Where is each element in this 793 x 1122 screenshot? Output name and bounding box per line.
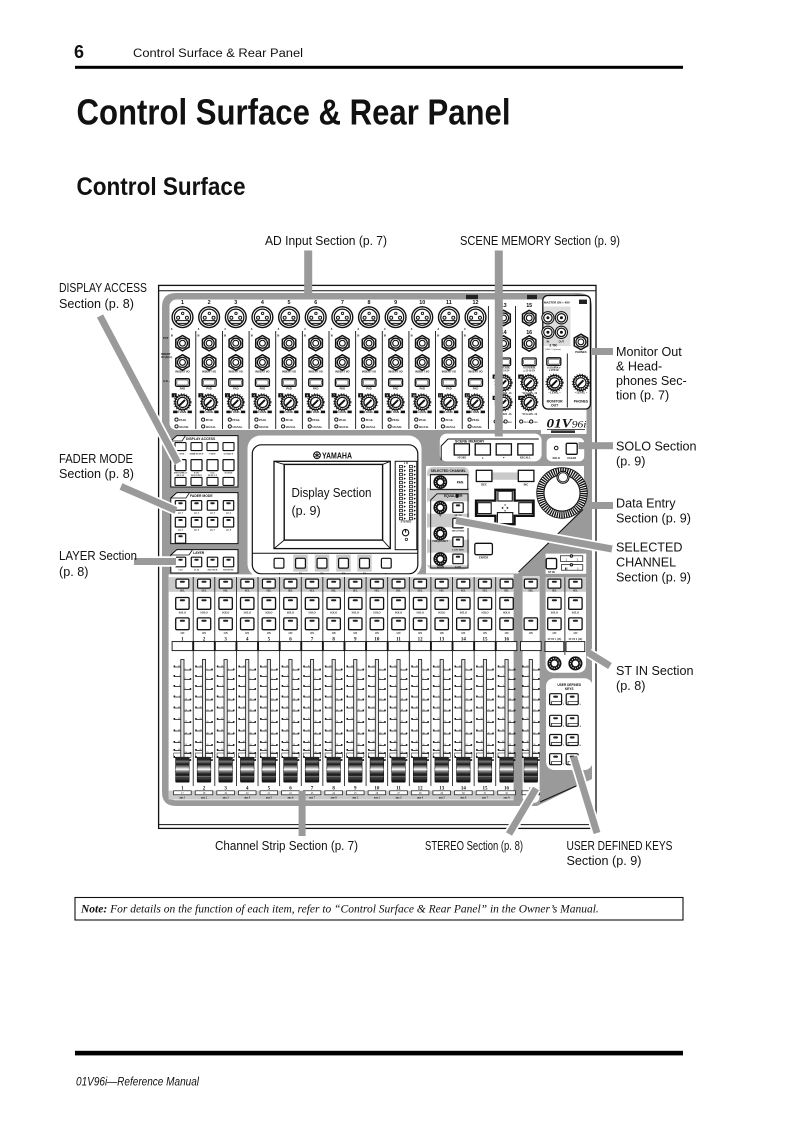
svg-text:SELECTED CHANNEL: SELECTED CHANNEL [431,469,467,473]
svg-text:ON: ON [202,632,206,635]
svg-text:CHANNEL: CHANNEL [616,556,676,570]
svg-text:SOLO: SOLO [503,611,510,614]
svg-text:Control Surface & Rear Panel: Control Surface & Rear Panel [133,48,303,60]
svg-text:+10 GAIN -16: +10 GAIN -16 [308,410,325,414]
svg-text:12: 12 [466,394,470,398]
svg-text:4: 4 [261,300,264,306]
svg-text:11: 11 [439,394,442,398]
svg-text:SOLO: SOLO [395,611,402,614]
svg-text:▲: ▲ [482,457,485,460]
svg-text:ON: ON [353,632,357,635]
svg-text:+10 GAIN -16: +10 GAIN -16 [441,410,458,414]
svg-text:SEL: SEL [202,589,207,592]
svg-text:UTILITY: UTILITY [224,454,234,456]
svg-text:(p. 8): (p. 8) [59,565,88,579]
svg-text:+10 GAIN -16: +10 GAIN -16 [174,410,191,414]
svg-text:+10 GAIN -16: +10 GAIN -16 [201,410,218,414]
svg-text:Section (p. 8): Section (p. 8) [59,467,134,481]
svg-text:PAD: PAD [420,387,426,391]
svg-text:LOW: LOW [455,566,462,569]
svg-text:aux 2: aux 2 [201,797,208,800]
svg-text:ST IN Section: ST IN Section [616,664,693,678]
svg-text:Channel Strip Section (p. 7): Channel Strip Section (p. 7) [215,839,358,853]
svg-text:FREQUENCY: FREQUENCY [432,540,448,543]
svg-text:SOLO: SOLO [438,611,445,614]
svg-text:MIDI/SETUP: MIDI/SETUP [190,454,204,456]
svg-text:+10 GAIN -16: +10 GAIN -16 [361,410,378,414]
svg-text:▲: ▲ [383,327,386,331]
svg-text:OUT: OUT [551,404,559,408]
svg-text:+10 GAIN -16: +10 GAIN -16 [281,410,298,414]
svg-text:PAN/: PAN/ [194,471,200,474]
svg-text:SEL: SEL [528,589,533,592]
svg-text:PEAK: PEAK [366,419,373,422]
svg-text:ON: ON [483,632,487,635]
svg-text:PAD: PAD [260,387,266,391]
svg-text:ON: ON [418,632,422,635]
svg-text:SEL: SEL [353,589,358,592]
svg-text:ON: ON [505,632,509,635]
svg-text:DISPLAY ACCESS: DISPLAY ACCESS [186,437,216,441]
svg-text:SEL: SEL [374,589,379,592]
svg-text:SIGNAL: SIGNAL [259,426,269,429]
svg-text:aux 1: aux 1 [179,797,186,800]
svg-text:PEAK: PEAK [419,419,426,422]
svg-text:17-32: 17-32 [194,569,200,571]
svg-text:PAD: PAD [286,387,292,391]
svg-text:CLEAR: CLEAR [567,456,576,460]
svg-text:ON: ON [180,632,184,635]
svg-text:DELAY: DELAY [177,474,185,477]
svg-text:Section (p. 9): Section (p. 9) [567,854,642,868]
svg-text:PAD: PAD [473,387,479,391]
svg-text:ST IN: ST IN [548,570,555,574]
svg-text:▲: ▲ [170,327,173,331]
svg-text:PAD: PAD [313,387,319,391]
svg-text:SCENE MEMORY Section (p. 9): SCENE MEMORY Section (p. 9) [460,234,620,248]
svg-text:ON: ON [573,632,577,635]
svg-text:aux 7: aux 7 [309,797,316,800]
svg-text:PEAK: PEAK [472,419,479,422]
svg-text:▲: ▲ [357,327,360,331]
svg-text:+10 GAIN -16: +10 GAIN -16 [254,410,271,414]
svg-text:aux 1: aux 1 [178,513,184,515]
svg-text:6: 6 [74,42,84,62]
svg-text:▪ LEVEL ▪: ▪ LEVEL ▪ [549,391,561,395]
svg-text:SOLO: SOLO [200,611,207,614]
svg-text:01V96i—Reference Manual: 01V96i—Reference Manual [76,1077,199,1089]
svg-text:SOLO: SOLO [373,611,380,614]
svg-text:aux 5: aux 5 [439,797,446,800]
svg-text:ON: ON [289,632,293,635]
svg-text:▼: ▼ [503,457,506,460]
svg-text:FADER MODE: FADER MODE [59,452,133,466]
svg-text:PEAK: PEAK [232,419,239,422]
svg-text:+10 GAIN -16: +10 GAIN -16 [414,410,431,414]
svg-text:SIGNAL: SIGNAL [312,426,322,429]
svg-text:aux 3: aux 3 [396,797,403,800]
svg-text:PEAK: PEAK [392,419,399,422]
svg-text:3: 3 [234,300,237,306]
svg-text:aux 6: aux 6 [194,529,200,531]
svg-text:SIGNAL: SIGNAL [206,426,216,429]
svg-text:aux 3: aux 3 [223,797,230,800]
svg-text:▲: ▲ [277,327,280,331]
svg-text:PAD: PAD [366,387,372,391]
svg-text:Display Section: Display Section [292,486,372,500]
svg-text:SOLO: SOLO [222,611,229,614]
svg-text:KEYS: KEYS [565,687,574,691]
svg-text:SEL: SEL [439,589,444,592]
svg-text:SEL: SEL [331,589,336,592]
svg-text:ON: ON [552,632,556,635]
svg-text:ON: ON [397,632,401,635]
svg-text:ST IN 2 (16): ST IN 2 (16) [569,638,583,641]
svg-text:SIGNAL: SIGNAL [366,426,376,429]
svg-text:+10 GAIN -16: +10 GAIN -16 [521,413,537,416]
svg-text:SEL: SEL [552,589,557,592]
svg-text:PAN: PAN [457,481,464,485]
svg-text:aux 8: aux 8 [504,797,511,800]
svg-text:+10 GAIN -16: +10 GAIN -16 [468,410,485,414]
svg-text:▲: ▲ [410,327,413,331]
svg-text:STEREO: STEREO [401,520,412,524]
svg-text:LAYER Section: LAYER Section [59,549,137,563]
svg-text:PAD: PAD [340,387,346,391]
svg-text:PEAK: PEAK [179,419,186,422]
svg-text:ON: ON [310,632,314,635]
svg-text:SEL: SEL [310,589,315,592]
svg-text:INSERT I/O: INSERT I/O [442,370,456,374]
svg-text:USER DEFINED KEYS: USER DEFINED KEYS [567,839,673,853]
svg-text:GAIN: GAIN [437,564,444,568]
svg-text:OUT: OUT [559,339,565,343]
svg-text:Monitor Out: Monitor Out [616,345,682,359]
svg-text:▮▯: ▮▯ [565,567,569,571]
svg-text:PHONES: PHONES [574,399,589,403]
svg-text:SOLO: SOLO [460,611,467,614]
svg-text:DEC: DEC [481,482,487,486]
svg-text:(p. 8): (p. 8) [616,679,645,693]
svg-text:SIGNAL: SIGNAL [286,426,296,429]
svg-text:SEL: SEL [288,589,293,592]
svg-text:SEL: SEL [573,589,578,592]
svg-text:LOW MID: LOW MID [452,548,464,551]
svg-text:aux 8: aux 8 [331,797,338,800]
svg-text:PAD: PAD [446,387,452,391]
svg-text:aux 4: aux 4 [244,797,251,800]
svg-text:7: 7 [341,300,344,306]
svg-text:SOLO: SOLO [265,611,272,614]
svg-text:SEL: SEL [418,589,423,592]
svg-text:SEL: SEL [180,589,185,592]
svg-text:PEAK: PEAK [312,419,319,422]
svg-text:SEL: SEL [266,589,271,592]
svg-text:SOLO: SOLO [572,611,579,614]
svg-text:Section (p. 9): Section (p. 9) [616,571,691,585]
svg-text:phones Sec-: phones Sec- [616,374,687,388]
svg-text:ON: ON [529,632,533,635]
svg-text:PEAK: PEAK [206,419,213,422]
svg-text:11: 11 [446,300,452,306]
svg-text:SOLO: SOLO [308,611,315,614]
svg-text:PATCH: PATCH [225,471,233,474]
svg-text:8: 8 [367,300,370,306]
svg-text:SELECTED: SELECTED [616,541,683,555]
svg-text:FADER MODE: FADER MODE [190,494,213,498]
svg-text:PAD: PAD [233,387,239,391]
svg-text:▲: ▲ [197,327,200,331]
svg-text:SOLO: SOLO [553,456,560,460]
svg-text:INSERT I/O: INSERT I/O [229,370,243,374]
svg-text:SOLO: SOLO [352,611,359,614]
svg-text:DYNAMICS/: DYNAMICS/ [174,471,188,474]
svg-text:▲: ▲ [330,327,333,331]
svg-text:SIG: SIG [533,421,537,424]
svg-text:aux 3: aux 3 [210,513,216,515]
svg-text:SOLO: SOLO [551,611,558,614]
svg-text:2 TR: 2 TR [549,344,557,348]
svg-text:SIGNAL: SIGNAL [339,426,349,429]
svg-text:aux 1: aux 1 [352,797,359,800]
svg-text:2: 2 [208,300,211,306]
svg-text:PEAK: PEAK [286,419,293,422]
svg-text:STEREO Section (p. 8): STEREO Section (p. 8) [425,839,523,853]
svg-text:5: 5 [288,300,291,306]
svg-text:AD Input Section (p. 7): AD Input Section (p. 7) [265,234,387,248]
svg-text:aux 2: aux 2 [374,797,381,800]
svg-text:ENTER: ENTER [479,556,488,560]
svg-text:tion (p. 7): tion (p. 7) [616,389,669,403]
svg-text:▲: ▲ [463,327,466,331]
svg-text:+10 GAIN -16: +10 GAIN -16 [388,410,405,414]
svg-text:SIGNAL: SIGNAL [472,426,482,429]
svg-text:SEL: SEL [223,589,228,592]
svg-text:SOLO: SOLO [417,611,424,614]
svg-text:▪ LEVEL ▪: ▪ LEVEL ▪ [575,391,587,395]
svg-text:I/O (BAL): I/O (BAL) [161,355,172,359]
svg-text:INSERT I/O: INSERT I/O [468,370,482,374]
svg-text:(ONLY 2 phono): (ONLY 2 phono) [545,349,561,351]
svg-text:SEL: SEL [396,589,401,592]
svg-text:Note: For details on the funct: Note: For details on the function of eac… [80,904,599,916]
svg-text:SOLO: SOLO [481,611,488,614]
svg-text:Q: Q [439,513,441,517]
svg-text:aux 4: aux 4 [226,513,232,515]
svg-text:SEL: SEL [504,589,509,592]
svg-text:PEAK: PEAK [259,419,266,422]
svg-text:SOLO Section: SOLO Section [616,440,697,454]
svg-text:MASTER ON + 48V: MASTER ON + 48V [544,300,570,304]
svg-text:ROUTING: ROUTING [191,475,202,477]
svg-text:VIEW: VIEW [209,454,216,456]
svg-text:L R: L R [404,461,408,465]
svg-text:SIGNAL: SIGNAL [179,426,189,429]
svg-text:6: 6 [314,300,317,306]
svg-text:+10 GAIN -16: +10 GAIN -16 [334,410,351,414]
svg-text:SIG: SIG [508,421,512,424]
svg-text:INSERT I/O: INSERT I/O [282,370,296,374]
svg-text:9: 9 [394,300,397,306]
svg-text:SIGNAL: SIGNAL [232,426,242,429]
svg-text:ON: ON [224,632,228,635]
svg-text:SIGNAL: SIGNAL [419,426,429,429]
svg-text:DISPLAY ACCESS: DISPLAY ACCESS [59,281,147,295]
svg-text:HIGH MID: HIGH MID [452,530,465,533]
svg-text:Control Surface: Control Surface [77,173,246,201]
svg-text:ON: ON [461,632,465,635]
svg-text:Data Entry: Data Entry [616,497,676,511]
svg-text:INSERT I/O: INSERT I/O [255,370,269,374]
svg-text:▴ 15-16 IN: ▴ 15-16 IN [522,369,535,372]
svg-text:LAYER: LAYER [193,551,205,555]
svg-text:REMOTE: REMOTE [223,569,234,571]
svg-text:aux 4: aux 4 [417,797,424,800]
svg-text:EFFECT: EFFECT [208,475,218,477]
svg-text:STORE: STORE [457,457,466,460]
svg-text:RECALL: RECALL [520,457,531,460]
svg-text:SOLO: SOLO [179,611,186,614]
svg-text:INSERT I/O: INSERT I/O [335,370,349,374]
svg-text:aux 6: aux 6 [287,797,294,800]
svg-text:INSERT I/O: INSERT I/O [175,370,189,374]
svg-text:▲: ▲ [304,327,307,331]
svg-text:aux 5: aux 5 [178,529,184,531]
svg-text:(p. 9): (p. 9) [292,504,321,518]
svg-text:PEAK: PEAK [339,419,346,422]
svg-text:▲: ▲ [437,327,440,331]
svg-text:PAD: PAD [206,387,212,391]
svg-text:10: 10 [412,394,416,398]
svg-text:PHONES: PHONES [575,350,587,354]
svg-text:SOLO: SOLO [287,611,294,614]
svg-text:PUT: PUT [163,336,169,340]
svg-text:INSERT I/O: INSERT I/O [309,370,323,374]
svg-text:+10 GAIN -16: +10 GAIN -16 [228,410,245,414]
svg-text:SIGNAL: SIGNAL [392,426,402,429]
svg-text:INSERT I/O: INSERT I/O [202,370,216,374]
svg-text:INSERT I/O: INSERT I/O [389,370,403,374]
svg-text:ON: ON [267,632,271,635]
svg-text:1: 1 [181,300,184,306]
svg-text:ON: ON [245,632,249,635]
svg-text:PAD: PAD [180,387,186,391]
svg-text:10: 10 [419,300,425,306]
svg-text:ON: ON [440,632,444,635]
svg-text:aux 8: aux 8 [226,529,232,531]
svg-text:EQUALIZER: EQUALIZER [444,494,463,498]
svg-text:aux 6: aux 6 [460,797,467,800]
svg-text:SCENE MEMORY: SCENE MEMORY [455,440,485,444]
svg-text:INC: INC [524,482,529,486]
svg-text:SOLO: SOLO [244,611,251,614]
svg-text:SEL: SEL [482,589,487,592]
svg-text:ON: ON [375,632,379,635]
svg-text:(p. 9): (p. 9) [616,454,645,468]
svg-text:SEL: SEL [245,589,250,592]
svg-text:aux 7: aux 7 [210,529,216,531]
svg-text:aux 5: aux 5 [266,797,273,800]
svg-text:ST IN 1 (15): ST IN 1 (15) [548,638,562,641]
svg-text:YAMAHA: YAMAHA [322,450,352,460]
svg-text:INSERT I/O: INSERT I/O [362,370,376,374]
svg-text:aux 7: aux 7 [482,797,489,800]
svg-text:▲: ▲ [250,327,253,331]
svg-text:Section (p. 9): Section (p. 9) [616,512,691,526]
svg-text:Control Surface & Rear Panel: Control Surface & Rear Panel [77,92,511,133]
svg-text:SOLO: SOLO [330,611,337,614]
svg-text:15: 15 [526,303,532,309]
svg-text:SEL: SEL [461,589,466,592]
svg-text:A.D –: A.D – [163,379,171,383]
svg-text:& Head-: & Head- [616,360,662,374]
svg-text:▲: ▲ [224,327,227,331]
svg-text:ON: ON [332,632,336,635]
svg-text:12: 12 [473,300,479,306]
svg-text:INSERT I/O: INSERT I/O [415,370,429,374]
svg-text:Section (p. 8): Section (p. 8) [59,297,134,311]
svg-text:SIGNAL: SIGNAL [446,426,456,429]
svg-text:PAD: PAD [393,387,399,391]
svg-text:▾ 2TR IN: ▾ 2TR IN [548,369,559,372]
svg-text:PEAK: PEAK [446,419,453,422]
svg-text:MASTER: MASTER [208,568,218,571]
svg-text:aux 2: aux 2 [194,513,200,515]
